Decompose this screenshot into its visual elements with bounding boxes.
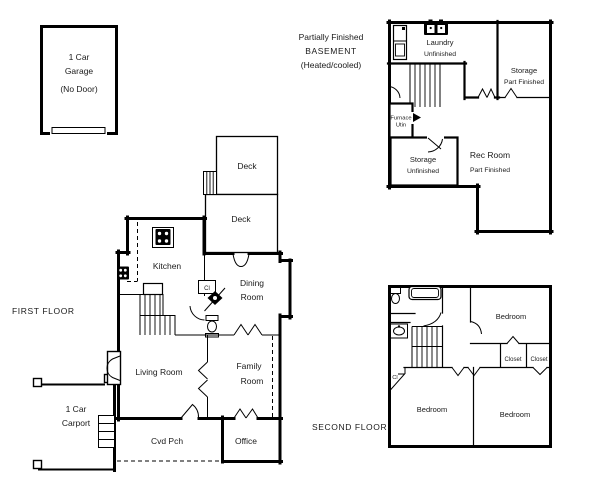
garage-label-line3: (No Door) <box>60 84 97 94</box>
garage-label-line1: 1 Car <box>69 52 90 62</box>
basement-stairs-treads <box>415 64 435 108</box>
laundry-label-line1: Laundry <box>426 38 453 47</box>
storage-left-label-line2: Unfinished <box>407 168 439 175</box>
closet-left-label: Closet <box>504 357 521 363</box>
sf-corner-closet-label: Cl <box>392 375 397 381</box>
dining-label-line2: Room <box>241 292 264 302</box>
carport-post-top-left <box>34 379 42 387</box>
storage-right-door-mark <box>505 89 517 98</box>
powder-door-arc <box>190 306 205 320</box>
carport-label-line1: 1 Car <box>66 404 87 414</box>
family-label-line2: Room <box>241 376 264 386</box>
family-label-line1: Family <box>236 361 262 371</box>
storage-right-label-line1: Storage <box>511 66 537 75</box>
fireplace-icon <box>107 352 121 385</box>
dining-room: Dining Room <box>233 254 264 302</box>
stairs-treads <box>145 295 170 336</box>
living-family-opening-marks <box>199 362 208 397</box>
house-exterior-walls <box>115 217 292 471</box>
porch-living-door-arc <box>181 405 199 419</box>
floor-plan-page: 1 Car Garage (No Door) FIRST FLOOR Deck … <box>0 0 600 481</box>
second-floor-plan: SECOND FLOOR Cl Bedroom <box>312 287 551 447</box>
basement-header-line1: Partially Finished <box>299 32 364 42</box>
office-label: Office <box>235 436 257 446</box>
garage-label-line2: Garage <box>65 66 94 76</box>
deck-door-swing <box>233 254 249 267</box>
dining-family-door-marks <box>234 325 262 336</box>
furnace-door-mark <box>413 113 421 122</box>
rec-room-label-line1: Rec Room <box>470 150 510 160</box>
kitchen-label: Kitchen <box>153 261 182 271</box>
dining-label-line1: Dining <box>240 278 264 288</box>
basement-stairs <box>410 64 440 108</box>
living-room-label: Living Room <box>135 367 182 377</box>
bedroom-bottom-left-label: Bedroom <box>417 405 447 414</box>
garage: 1 Car Garage (No Door) <box>42 27 117 137</box>
carport-label-line2: Carport <box>62 418 91 428</box>
water-heater-icon <box>394 26 407 60</box>
rec-room-label-line2: Part Finished <box>470 167 510 174</box>
toilet-icon-powder <box>206 316 219 338</box>
first-floor-title: FIRST FLOOR <box>12 306 75 316</box>
bathtub-icon <box>409 287 441 300</box>
hall-closet-label: Cl <box>204 286 210 292</box>
first-floor-stairs <box>119 284 175 336</box>
storage-unfinished-room: Storage Unfinished <box>391 135 458 186</box>
basement-header-line3: (Heated/cooled) <box>301 60 362 70</box>
garage-walls <box>42 27 117 134</box>
storage-left-label-line1: Storage <box>410 155 436 164</box>
storage-right-label-line2: Part Finished <box>504 79 544 86</box>
closet-right-label: Closet <box>530 357 547 363</box>
toilet-icon-bath <box>391 288 401 304</box>
furnace-label-line1: Furnace <box>390 116 411 122</box>
carport-post-bottom-left <box>34 461 42 469</box>
stairs-outline <box>119 295 175 336</box>
bedroom-top-label: Bedroom <box>496 312 526 321</box>
decks: Deck Deck <box>204 137 278 253</box>
bedroom-bottom-right-label: Bedroom <box>500 410 530 419</box>
powder-room: Cl <box>190 254 225 337</box>
second-floor-title: SECOND FLOOR <box>312 422 387 432</box>
deck-upper-label: Deck <box>237 161 257 171</box>
porch-steps <box>99 416 115 448</box>
furnace-room: Furnace Utin <box>390 104 422 138</box>
kitchen-sink-icon <box>117 267 129 280</box>
deck-lower-label: Deck <box>231 214 251 224</box>
basement-header-line2: BASEMENT <box>305 46 357 56</box>
rec-room-door-marks <box>478 89 495 98</box>
vanity-sink-icon <box>391 324 408 338</box>
garage-opening-threshold <box>52 128 105 134</box>
family-office-door-marks <box>234 409 258 418</box>
furnace-label-line2: Utin <box>396 123 406 129</box>
first-floor-plan: 1 Car Carport Cvd Pch <box>34 217 292 471</box>
basement-plan: Partially Finished BASEMENT (Heated/cool… <box>299 20 552 234</box>
floor-plan-canvas: 1 Car Garage (No Door) FIRST FLOOR Deck … <box>0 0 600 481</box>
laundry-label-line2: Unfinished <box>424 51 456 58</box>
stairs-landing-box <box>144 284 163 295</box>
stove-icon <box>156 229 171 245</box>
covered-porch-label: Cvd Pch <box>151 436 183 446</box>
